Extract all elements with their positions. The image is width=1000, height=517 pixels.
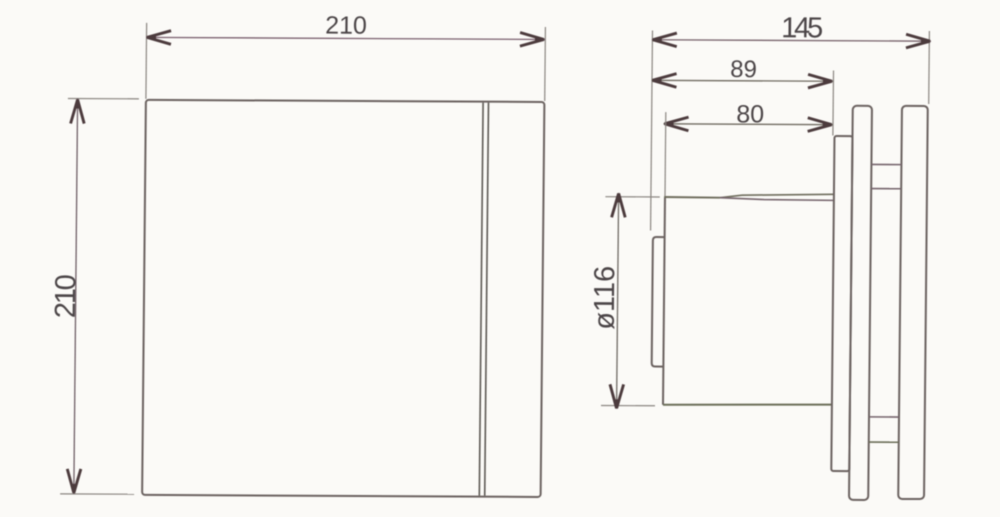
svg-text:ø116: ø116 bbox=[589, 266, 622, 330]
svg-text:210: 210 bbox=[325, 12, 367, 40]
svg-text:80: 80 bbox=[736, 100, 764, 128]
svg-text:89: 89 bbox=[730, 56, 757, 83]
svg-text:145: 145 bbox=[781, 12, 823, 44]
svg-text:210: 210 bbox=[50, 274, 82, 318]
